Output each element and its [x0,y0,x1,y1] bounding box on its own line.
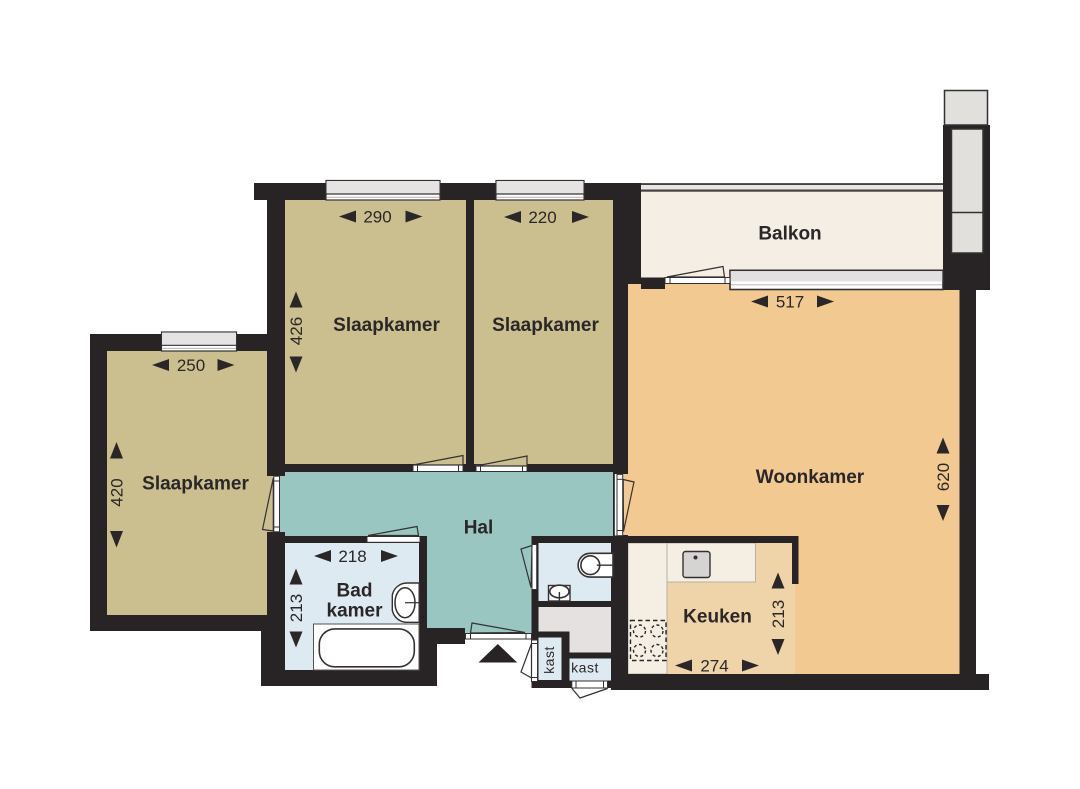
svg-text:220: 220 [528,208,556,227]
svg-text:290: 290 [363,208,391,227]
svg-text:274: 274 [700,657,728,676]
svg-text:Balkon: Balkon [758,224,821,245]
svg-text:Keuken: Keuken [683,607,752,628]
svg-text:517: 517 [776,293,804,312]
svg-text:218: 218 [338,547,366,566]
svg-text:kast: kast [541,646,557,674]
svg-text:420: 420 [108,478,127,506]
svg-text:213: 213 [287,594,306,622]
svg-text:620: 620 [934,463,953,491]
svg-text:250: 250 [177,356,205,375]
svg-text:426: 426 [287,317,306,345]
svg-text:Bad: Bad [337,581,373,602]
svg-text:Slaapkamer: Slaapkamer [333,315,440,336]
svg-text:kamer: kamer [327,601,384,622]
svg-text:kast: kast [571,660,599,676]
svg-text:Slaapkamer: Slaapkamer [142,474,249,495]
svg-text:Slaapkamer: Slaapkamer [492,315,599,336]
svg-text:213: 213 [769,600,788,628]
svg-text:Woonkamer: Woonkamer [756,467,865,488]
svg-text:Hal: Hal [464,518,494,539]
